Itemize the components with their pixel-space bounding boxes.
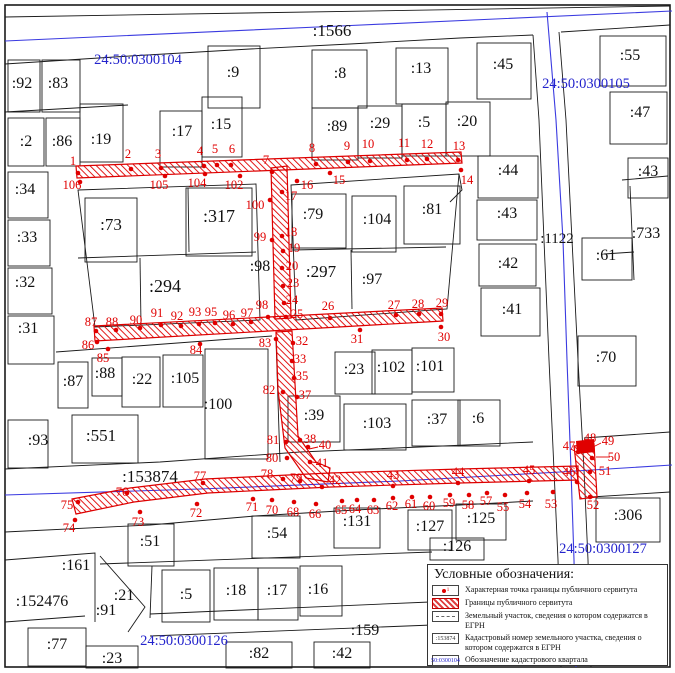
servitude-point-label: 70 (266, 503, 279, 517)
servitude-point-dot (292, 500, 297, 505)
servitude-point-label: 77 (194, 469, 207, 483)
parcel-label: :1566 (313, 21, 352, 40)
servitude-point-dot (394, 313, 399, 318)
servitude-point-label: 54 (519, 497, 532, 511)
servitude-point-label: 5 (212, 142, 218, 156)
parcel-label: :21 (114, 587, 134, 604)
parcel-label: :92 (12, 75, 32, 92)
servitude-point-label: 106 (63, 178, 82, 192)
servitude-point-label: 27 (388, 298, 401, 312)
parcel-label: :104 (363, 211, 391, 228)
legend-item-egrn-parcel: Земельный участок, сведения о котором со… (432, 611, 663, 631)
servitude-point-dot (346, 160, 351, 165)
parcel-label: :73 (100, 215, 122, 234)
servitude-point-label: 60 (423, 499, 436, 513)
parcel-label: :51 (140, 533, 160, 550)
servitude-point-dot (229, 163, 234, 168)
servitude-point-label: 97 (241, 306, 254, 320)
parcel-label: :87 (63, 373, 83, 390)
parcel-label: :33 (17, 229, 37, 246)
servitude-point-label: 48 (584, 431, 597, 445)
servitude-point-label: 80 (266, 451, 279, 465)
parcel-label: :42 (332, 645, 352, 662)
parcel-label: :43 (497, 205, 517, 222)
parcel-label: :17 (172, 123, 192, 140)
servitude-point-label: 76 (116, 485, 129, 499)
servitude-point-dot (213, 321, 218, 326)
servitude-point-label: 87 (85, 315, 98, 329)
quarter-label: 24:50:0300104 (94, 52, 183, 68)
servitude-point-label: 62 (386, 499, 399, 513)
servitude-point-label: 49 (602, 434, 615, 448)
servitude-boundary-icon (432, 598, 459, 609)
servitude-point-label: 37 (299, 388, 312, 402)
servitude-point-label: 55 (497, 500, 510, 514)
servitude-point-label: 33 (294, 352, 307, 366)
servitude-point-dot (527, 479, 532, 484)
parcel-label: :97 (362, 271, 382, 288)
servitude-point-dot (284, 440, 289, 445)
servitude-point-label: 86 (82, 338, 95, 352)
servitude-point-label: 43 (387, 468, 400, 482)
servitude-point-label: 16 (301, 178, 314, 192)
servitude-point-dot (328, 171, 333, 176)
parcel-label: :161 (62, 557, 90, 574)
servitude-point-label: 93 (189, 305, 202, 319)
servitude-point-label: 1 (70, 154, 76, 168)
servitude-point-label: 74 (63, 521, 76, 535)
servitude-point-dot (281, 249, 286, 254)
parcel-label: :91 (96, 602, 116, 619)
parcel-label: :93 (28, 432, 48, 449)
parcel-label: :22 (132, 371, 152, 388)
servitude-point-label: 20 (286, 259, 299, 273)
servitude-point-dot (202, 164, 207, 169)
servitude-point-label: 95 (205, 305, 218, 319)
parcel-label: :16 (308, 581, 328, 598)
servitude-point-label: 18 (285, 225, 298, 239)
servitude-point-dot (249, 320, 254, 325)
servitude-point-dot (280, 234, 285, 239)
servitude-point-dot (270, 498, 275, 503)
parcel-label: :20 (457, 113, 477, 130)
servitude-point-dot (551, 490, 556, 495)
servitude-point-dot (456, 158, 461, 163)
servitude-point-label: 14 (461, 173, 474, 187)
servitude-point-label: 81 (267, 433, 280, 447)
parcel-label: :88 (95, 365, 115, 382)
parcel-label: :89 (327, 118, 347, 135)
parcel-label: :5 (418, 114, 430, 131)
servitude-point-dot (281, 284, 286, 289)
quarter-label: 24:50:0300126 (140, 633, 228, 649)
parcel-label: :45 (493, 56, 513, 73)
legend-item-label: Границы публичного сервитута (465, 598, 572, 608)
servitude-point-label: 71 (246, 500, 259, 514)
servitude-point-label: 35 (296, 369, 309, 383)
servitude-point-dot (197, 322, 202, 327)
servitude-point-dot (328, 316, 333, 321)
legend-item-boundary: Границы публичного сервитута (432, 598, 663, 609)
servitude-point-label: 2 (125, 147, 131, 161)
servitude-point-label: 24 (286, 293, 299, 307)
servitude-point-dot (280, 190, 285, 195)
quarter-designation-icon: 50:0300104 (432, 655, 459, 666)
servitude-point-label: 4 (197, 144, 204, 158)
parcel-label: :153874 (122, 467, 178, 486)
parcel-label: :103 (363, 415, 391, 432)
servitude-point-dot (95, 340, 100, 345)
parcel-label: :15 (211, 116, 231, 133)
parcel-label: :18 (226, 582, 246, 599)
servitude-point-dot (94, 329, 99, 334)
servitude-point-label: 44 (452, 465, 465, 479)
servitude-point-label: 73 (132, 515, 145, 529)
servitude-point-dot (320, 485, 325, 490)
legend-item-cadastral-number: :153874 Кадастровый номер земельного уча… (432, 633, 663, 653)
servitude-point-label: 90 (130, 313, 143, 327)
parcel-label: :317 (203, 206, 235, 226)
servitude-point-label: 61 (405, 497, 418, 511)
parcel-label: :306 (614, 507, 642, 524)
servitude-point-dot (281, 477, 286, 482)
servitude-point-label: 12 (421, 137, 434, 151)
servitude-point-label: 50 (608, 450, 621, 464)
servitude-point-dot (459, 168, 464, 173)
cadastral-number-icon: :153874 (432, 633, 459, 644)
servitude-point-dot (405, 158, 410, 163)
servitude-point-dot (281, 390, 286, 395)
servitude-point-label: 7 (263, 153, 269, 167)
legend-item-point: 1 Характерная точка границы публичного с… (432, 585, 663, 596)
servitude-point-label: 19 (288, 241, 301, 255)
parcel-label: :42 (498, 255, 518, 272)
servitude-point-label: 42 (329, 473, 342, 487)
servitude-point-label: 82 (263, 383, 276, 397)
servitude-point-label: 51 (599, 464, 612, 478)
parcel-label: :17 (267, 582, 287, 599)
parcel-label: :131 (343, 513, 371, 530)
parcel-label: :126 (443, 538, 471, 555)
servitude-point-label: 10 (362, 137, 375, 151)
servitude-point-label: 53 (545, 497, 558, 511)
servitude-point-dot (525, 491, 530, 496)
servitude-point-label: 88 (106, 315, 119, 329)
servitude-point-label: 84 (190, 343, 203, 357)
servitude-point-label: 13 (453, 139, 466, 153)
servitude-point-label: 11 (398, 136, 410, 150)
parcel-label: :23 (344, 361, 364, 378)
servitude-point-label: 40 (319, 438, 332, 452)
servitude-point-dot (76, 171, 81, 176)
servitude-point-label: 92 (171, 309, 184, 323)
servitude-point-dot (588, 446, 593, 451)
servitude-point-dot (582, 446, 587, 451)
parcel-label: :82 (249, 645, 269, 662)
servitude-point-label: 99 (254, 230, 267, 244)
parcel-label: :5 (180, 586, 192, 603)
parcel-label: :13 (411, 60, 431, 77)
parcel-label: :29 (370, 115, 390, 132)
servitude-point-dot (138, 510, 143, 515)
servitude-point-dot (372, 498, 377, 503)
servitude-point-dot (439, 325, 444, 330)
quarter-label: 24:50:0300127 (559, 541, 647, 557)
servitude-point-label: 29 (436, 296, 449, 310)
servitude-point-dot (417, 312, 422, 317)
servitude-point-dot (588, 470, 593, 475)
parcel-label: :37 (427, 411, 447, 428)
servitude-point-dot (456, 481, 461, 486)
servitude-point-dot (285, 456, 290, 461)
parcel-label: :83 (48, 75, 68, 92)
servitude-point-label: 91 (151, 306, 164, 320)
parcel-label: :152476 (16, 593, 68, 610)
legend-item-quarter: 50:0300104 Обозначение кадастрового квар… (432, 655, 663, 666)
parcel-label: :2 (20, 133, 32, 150)
servitude-point-dot (368, 159, 373, 164)
parcel-label: :61 (596, 247, 616, 264)
parcel-label: :55 (620, 47, 640, 64)
parcel-label: :79 (303, 206, 323, 223)
parcel-label: :70 (596, 349, 616, 366)
servitude-point-label: 28 (412, 297, 425, 311)
servitude-point-dot (231, 322, 236, 327)
servitude-point-dot (576, 450, 581, 455)
servitude-point-dot (308, 460, 313, 465)
parcel-label: :39 (304, 407, 324, 424)
servitude-point-label: 31 (351, 332, 364, 346)
servitude-point-label: 96 (223, 308, 236, 322)
servitude-point-dot (179, 324, 184, 329)
servitude-point-label: 83 (259, 336, 272, 350)
servitude-point-label: 3 (155, 147, 161, 161)
servitude-point-dot (268, 198, 273, 203)
servitude-point-label: 8 (309, 141, 315, 155)
servitude-point-label: 78 (261, 467, 274, 481)
parcel-label: :159 (351, 622, 379, 639)
legend-item-label: Земельный участок, сведения о котором со… (465, 611, 663, 631)
parcel-label: :102 (377, 359, 405, 376)
servitude-point-label: 47 (563, 439, 576, 453)
servitude-point-dot (291, 341, 296, 346)
legend-item-label: Характерная точка границы публичного сер… (465, 585, 637, 595)
servitude-point-label: 46 (563, 465, 576, 479)
parcel-label: :54 (267, 525, 287, 542)
servitude-point-dot (575, 480, 580, 485)
parcel-label: :23 (102, 650, 122, 667)
parcel-label: :47 (630, 104, 650, 121)
servitude-point-label: 75 (61, 498, 74, 512)
servitude-point-label: 41 (316, 456, 329, 470)
servitude-point-label: 72 (190, 506, 203, 520)
servitude-point-dot (314, 502, 319, 507)
servitude-point-dot (298, 438, 303, 443)
quarter-label: 24:50:0300105 (542, 76, 630, 92)
servitude-point-label: 66 (309, 507, 322, 521)
egrn-parcel-icon (432, 611, 459, 622)
servitude-point-dot (280, 266, 285, 271)
servitude-point-label: 102 (225, 178, 244, 192)
servitude-point-dot (295, 179, 300, 184)
parcel-label: :32 (15, 274, 35, 291)
parcel-label: :1122 (540, 231, 574, 247)
parcel-label: :43 (638, 163, 658, 180)
parcel-label: :127 (416, 518, 444, 535)
servitude-point-label: 32 (296, 334, 309, 348)
servitude-point-dot (391, 484, 396, 489)
servitude-point-label: 17 (285, 189, 298, 203)
servitude-point-dot (215, 163, 220, 168)
parcel-label: :34 (15, 181, 35, 198)
servitude-point-dot (590, 456, 595, 461)
servitude-point-label: 23 (287, 276, 300, 290)
characteristic-point-icon: 1 (432, 585, 459, 596)
servitude-point-label: 52 (587, 498, 600, 512)
servitude-point-dot (425, 157, 430, 162)
servitude-point-label: 30 (438, 330, 451, 344)
parcel-label: :9 (227, 64, 239, 81)
servitude-point-dot (159, 323, 164, 328)
parcel-label: :81 (422, 201, 442, 218)
servitude-point-label: 105 (150, 178, 169, 192)
parcel-label: :105 (171, 370, 199, 387)
servitude-point-label: 100 (246, 198, 265, 212)
parcel-label: :31 (18, 320, 38, 337)
parcel-label: :44 (498, 162, 518, 179)
legend: Условные обозначения: 1 Характерная точк… (427, 564, 668, 666)
servitude-point-label: 79 (290, 471, 303, 485)
legend-item-label: Обозначение кадастрового квартала (465, 655, 588, 665)
servitude-point-dot (76, 500, 81, 505)
parcel-label: :77 (47, 636, 67, 653)
servitude-point-label: 9 (344, 139, 350, 153)
parcel-label: :41 (502, 301, 522, 318)
servitude-point-dot (270, 170, 275, 175)
servitude-point-label: 57 (480, 494, 493, 508)
servitude-point-label: 38 (304, 432, 317, 446)
servitude-point-label: 25 (291, 307, 304, 321)
servitude-point-label: 45 (523, 463, 536, 477)
parcel-label: :733 (632, 225, 660, 242)
servitude-point-dot (314, 162, 319, 167)
parcel-label: :294 (149, 276, 181, 296)
servitude-point-dot (503, 493, 508, 498)
parcel-label: :100 (204, 396, 232, 413)
servitude-point-label: 26 (322, 299, 335, 313)
servitude-point-label: 98 (256, 298, 269, 312)
servitude-point-label: 59 (443, 496, 456, 510)
cadastral-plan-canvas: 1234567891011121314151617181920232425262… (0, 0, 675, 673)
servitude-point-dot (439, 312, 444, 317)
servitude-point-label: 6 (229, 142, 235, 156)
servitude-point-dot (284, 315, 289, 320)
parcel-label: :8 (334, 65, 346, 82)
servitude-point-dot (274, 337, 279, 342)
servitude-point-label: 104 (188, 176, 208, 190)
parcel-label: :125 (467, 510, 495, 527)
servitude-point-dot (159, 166, 164, 171)
parcel-label: :297 (306, 262, 337, 281)
servitude-point-dot (266, 315, 271, 320)
servitude-point-label: 85 (97, 351, 110, 365)
parcel-label: :551 (86, 426, 116, 445)
servitude-point-dot (467, 493, 472, 498)
servitude-point-label: 15 (333, 173, 346, 187)
parcel-label: :101 (416, 358, 444, 375)
servitude-point-dot (270, 238, 275, 243)
parcel-label: :6 (472, 410, 484, 427)
parcel-label: :98 (250, 258, 270, 275)
parcel-label: :86 (52, 133, 72, 150)
legend-item-label: Кадастровый номер земельного участка, св… (465, 633, 663, 653)
servitude-point-dot (129, 167, 134, 172)
servitude-point-label: 68 (287, 505, 300, 519)
parcel-label: :19 (91, 131, 111, 148)
legend-title: Условные обозначения: (434, 567, 663, 583)
